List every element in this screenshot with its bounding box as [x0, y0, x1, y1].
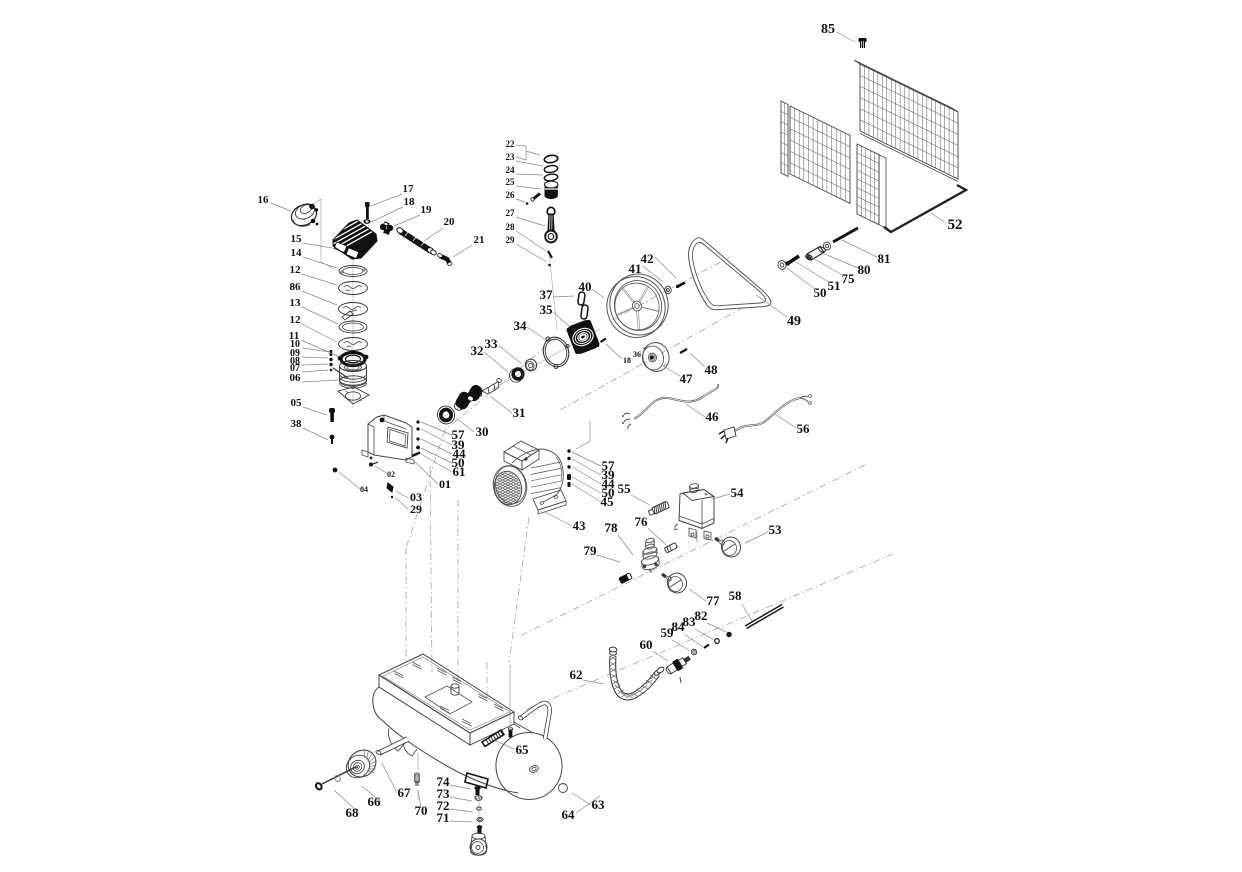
- svg-text:78: 78: [605, 520, 619, 535]
- svg-text:20: 20: [444, 216, 456, 228]
- svg-text:75: 75: [842, 271, 856, 286]
- svg-text:43: 43: [573, 518, 587, 533]
- svg-text:28: 28: [506, 222, 516, 232]
- svg-text:51: 51: [828, 278, 841, 293]
- svg-text:83: 83: [683, 614, 697, 629]
- svg-text:85: 85: [821, 22, 835, 37]
- svg-text:62: 62: [570, 667, 583, 682]
- svg-text:52: 52: [948, 217, 963, 233]
- svg-text:42: 42: [641, 251, 654, 266]
- svg-text:84: 84: [672, 619, 686, 634]
- svg-text:59: 59: [661, 625, 675, 640]
- svg-text:67: 67: [398, 785, 412, 800]
- svg-text:76: 76: [635, 514, 649, 529]
- svg-text:45: 45: [601, 494, 615, 509]
- svg-text:61: 61: [453, 464, 466, 479]
- svg-text:80: 80: [858, 262, 871, 277]
- svg-text:55: 55: [618, 481, 632, 496]
- svg-text:18: 18: [404, 196, 416, 208]
- svg-text:24: 24: [506, 165, 516, 175]
- svg-text:13: 13: [290, 297, 302, 309]
- svg-text:27: 27: [506, 208, 516, 218]
- svg-text:54: 54: [731, 485, 745, 500]
- svg-text:33: 33: [485, 336, 499, 351]
- svg-text:12: 12: [290, 264, 302, 276]
- svg-text:21: 21: [474, 234, 485, 246]
- svg-text:49: 49: [787, 314, 801, 329]
- svg-text:23: 23: [506, 152, 516, 162]
- svg-text:17: 17: [403, 183, 415, 195]
- svg-text:82: 82: [695, 608, 708, 623]
- svg-text:02: 02: [387, 470, 395, 479]
- svg-text:37: 37: [540, 287, 554, 302]
- svg-text:48: 48: [705, 362, 719, 377]
- svg-text:58: 58: [729, 588, 743, 603]
- svg-text:86: 86: [290, 281, 302, 293]
- svg-text:29: 29: [410, 502, 422, 516]
- svg-text:64: 64: [562, 807, 576, 822]
- svg-text:63: 63: [592, 797, 606, 812]
- svg-text:19: 19: [421, 204, 433, 216]
- svg-text:38: 38: [291, 418, 303, 430]
- svg-text:16: 16: [258, 194, 270, 206]
- svg-text:14: 14: [291, 247, 303, 259]
- svg-text:04: 04: [360, 485, 368, 494]
- svg-text:32: 32: [471, 343, 484, 358]
- svg-text:15: 15: [291, 233, 303, 245]
- svg-text:12: 12: [290, 314, 302, 326]
- svg-text:30: 30: [476, 424, 489, 439]
- svg-text:40: 40: [579, 279, 592, 294]
- svg-text:25: 25: [506, 177, 516, 187]
- svg-text:70: 70: [415, 803, 428, 818]
- svg-text:46: 46: [706, 409, 720, 424]
- svg-text:31: 31: [513, 405, 526, 420]
- svg-text:29: 29: [506, 235, 516, 245]
- svg-text:81: 81: [878, 251, 891, 266]
- svg-text:35: 35: [540, 302, 554, 317]
- svg-text:05: 05: [291, 397, 303, 409]
- svg-text:47: 47: [680, 371, 694, 386]
- svg-text:71: 71: [437, 810, 450, 825]
- svg-text:60: 60: [640, 637, 653, 652]
- svg-text:50: 50: [814, 285, 827, 300]
- svg-text:53: 53: [769, 522, 783, 537]
- svg-text:65: 65: [516, 742, 530, 757]
- svg-text:18: 18: [623, 356, 631, 365]
- svg-text:36: 36: [633, 350, 641, 359]
- svg-text:26: 26: [506, 190, 516, 200]
- svg-text:34: 34: [514, 318, 528, 333]
- svg-text:06: 06: [290, 372, 302, 384]
- svg-text:77: 77: [707, 593, 721, 608]
- svg-text:56: 56: [797, 421, 811, 436]
- svg-text:01: 01: [439, 477, 451, 491]
- svg-text:79: 79: [584, 543, 598, 558]
- svg-text:22: 22: [506, 139, 516, 149]
